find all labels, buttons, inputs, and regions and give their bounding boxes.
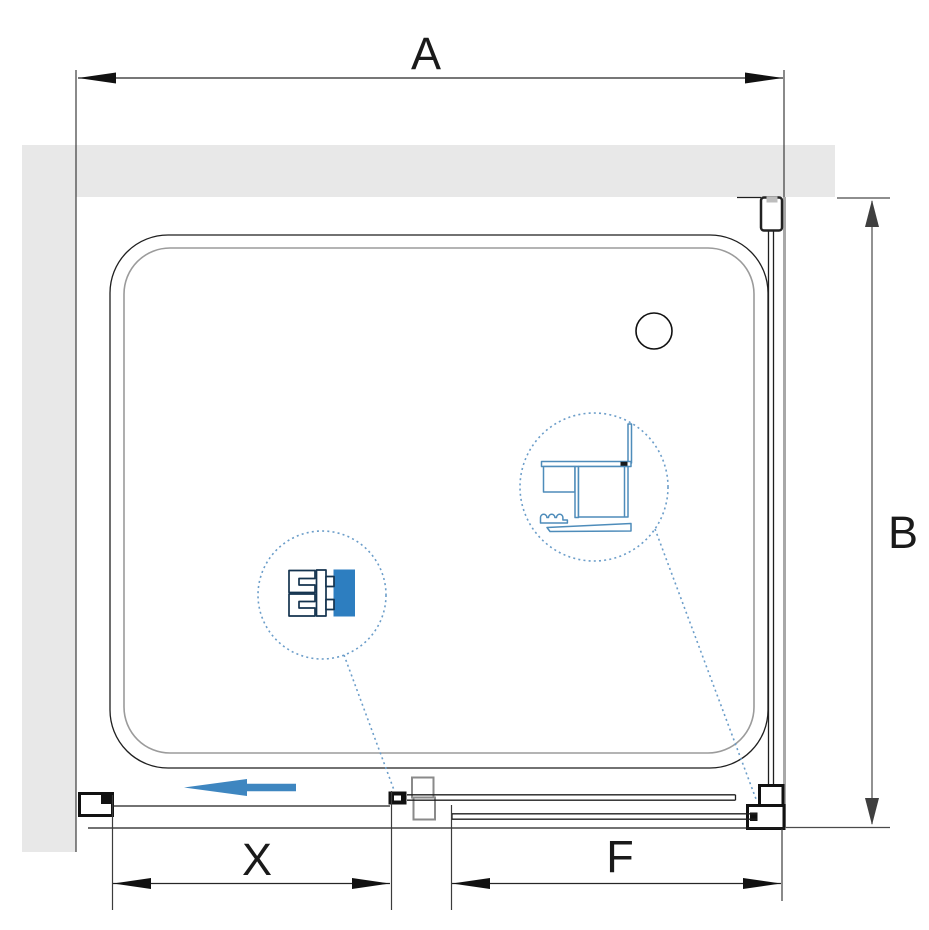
dimension-b: B bbox=[786, 198, 918, 828]
rail-profile-tick bbox=[621, 462, 628, 466]
clamp-grip-top bbox=[326, 577, 334, 587]
shower-tray-outer bbox=[110, 235, 768, 768]
technical-drawing-canvas: A B X F bbox=[0, 0, 929, 930]
rail-profile-glass-stub bbox=[628, 424, 632, 463]
clamp-body bbox=[317, 570, 327, 616]
detail-leader-left bbox=[344, 655, 394, 790]
corner-block-upper bbox=[760, 786, 784, 807]
dim-f-label: F bbox=[606, 831, 634, 882]
clamp-grip-bottom bbox=[326, 600, 334, 610]
side-panel-bracket-notch bbox=[767, 197, 778, 203]
detail-circle-clamp-profile bbox=[258, 531, 386, 659]
detail-leader-right bbox=[655, 529, 756, 799]
drain-circle bbox=[636, 313, 672, 349]
dim-x-label: X bbox=[242, 834, 272, 885]
dim-f-arrow-left bbox=[452, 878, 490, 889]
dim-x-arrow-right bbox=[352, 878, 390, 889]
slide-direction-arrow bbox=[184, 779, 296, 796]
dim-a-arrow-left bbox=[78, 73, 116, 84]
shower-enclosure-diagram: A B X F bbox=[0, 0, 929, 930]
rail-profile-left-chamber bbox=[544, 467, 576, 493]
wall-top bbox=[22, 145, 835, 197]
clamp-jaw-bottom bbox=[289, 594, 315, 616]
dim-f-arrow-right bbox=[743, 878, 781, 889]
clamp-jaw-top bbox=[289, 571, 315, 593]
wall-left bbox=[22, 145, 76, 852]
dimension-f: F bbox=[452, 805, 783, 910]
dim-b-arrow-top bbox=[865, 200, 879, 227]
detail-circle-rail-profile bbox=[520, 413, 668, 561]
door-handle-slot bbox=[394, 796, 401, 801]
dim-b-arrow-bottom bbox=[865, 798, 879, 825]
glass-edge-blue bbox=[334, 570, 356, 617]
dim-x-arrow-left bbox=[113, 878, 151, 889]
dim-a-label: A bbox=[411, 28, 441, 79]
rail-profile-bottom-strip bbox=[547, 524, 631, 532]
dim-a-arrow-right bbox=[745, 73, 783, 84]
left-wall-profile-cap bbox=[101, 794, 113, 805]
dimension-x: X bbox=[113, 791, 392, 910]
rail-profile-main-chamber bbox=[579, 467, 629, 518]
dim-b-label: B bbox=[888, 507, 918, 558]
rail-profile-seal-serration bbox=[541, 514, 568, 523]
